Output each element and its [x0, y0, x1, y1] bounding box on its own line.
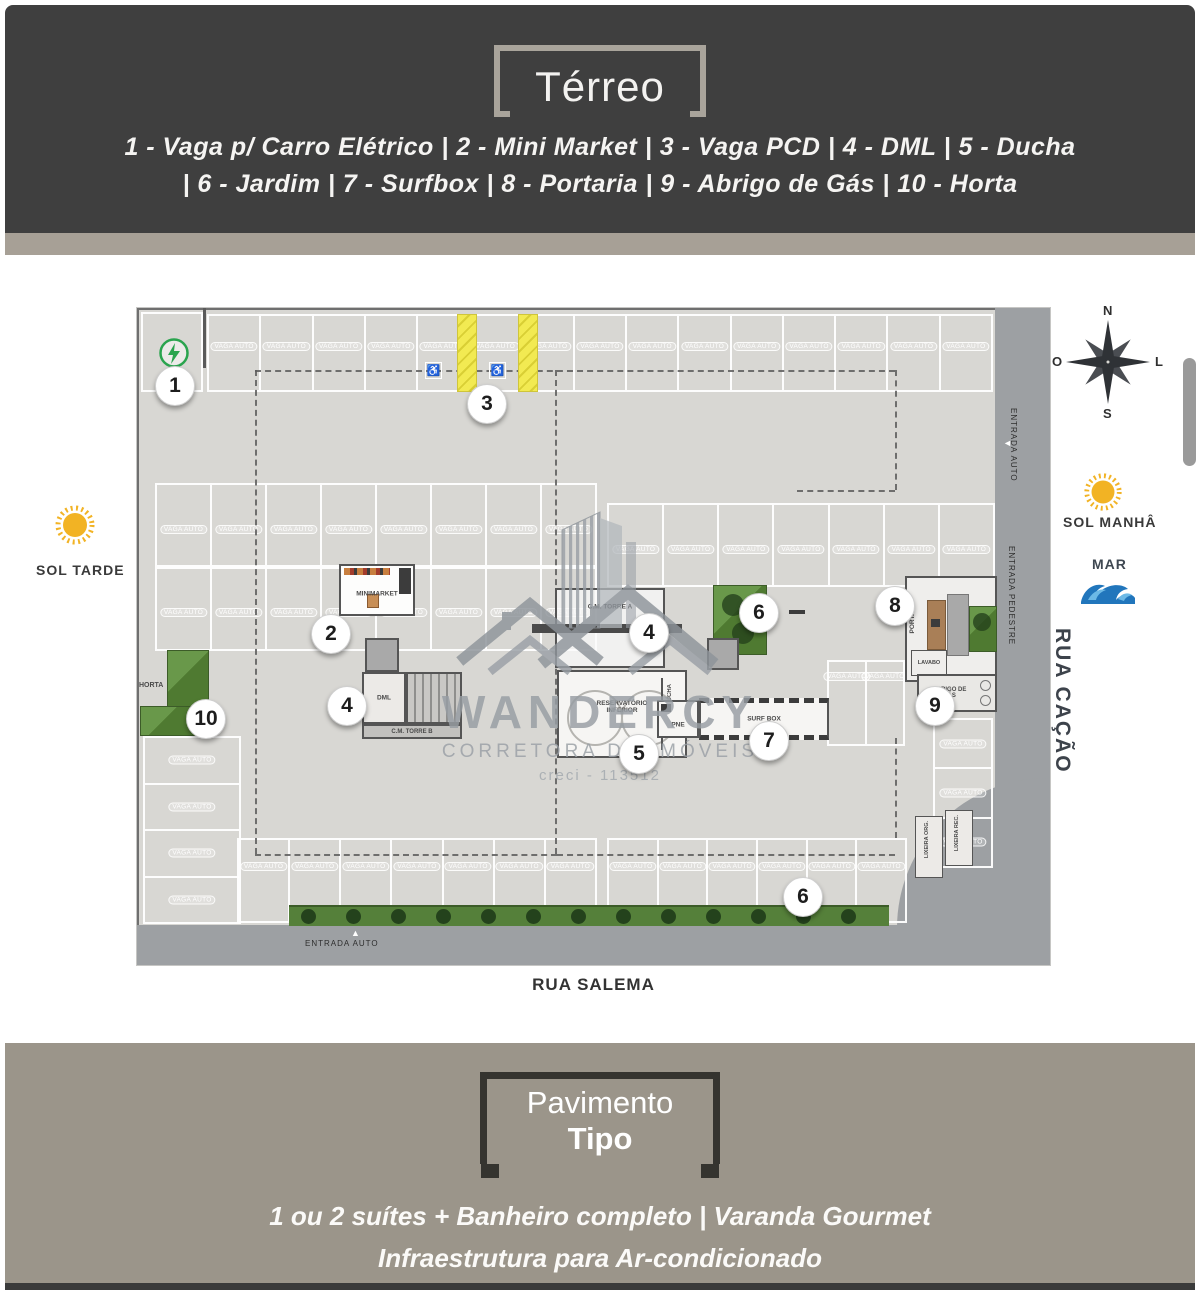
scrollbar-thumb[interactable] [1183, 358, 1196, 466]
sea-label: MAR [1092, 556, 1127, 572]
compass-w-label: O [1052, 354, 1062, 369]
street-name-rua-salema: RUA SALEMA [137, 975, 1050, 995]
street-name-rua-cacao: RUA CAÇÃO [1050, 628, 1074, 774]
compass-icon [1066, 320, 1150, 404]
legend-line-1: 1 - Vaga p/ Carro Elétrico | 2 - Mini Ma… [5, 133, 1195, 162]
floor-plan: VAGA AUTOVAGA AUTOVAGA AUTOVAGA AUTOVAGA… [137, 308, 1050, 965]
compass-s-label: S [1103, 406, 1112, 421]
plan-marker-9: 9 [915, 686, 955, 726]
plan-marker-7: 7 [749, 721, 789, 761]
footer-pavimento-tipo: Pavimento Tipo 1 ou 2 suítes + Banheiro … [5, 1043, 1195, 1283]
plan-marker-6: 6 [783, 877, 823, 917]
footer-title-line1: Pavimento [5, 1085, 1195, 1121]
sun-morning-label: SOL MANHÂ [1063, 514, 1157, 530]
floorplan-page: Térreo 1 - Vaga p/ Carro Elétrico | 2 - … [0, 0, 1200, 1290]
wave-icon [1078, 574, 1138, 606]
plan-marker-10: 10 [186, 699, 226, 739]
sun-icon [1081, 470, 1125, 514]
plan-marker-5: 5 [619, 734, 659, 774]
plan-marker-8: 8 [875, 586, 915, 626]
plan-marker-1: 1 [155, 366, 195, 406]
plan-marker-4: 4 [629, 613, 669, 653]
plan-marker-6: 6 [739, 593, 779, 633]
compass-e-label: L [1155, 354, 1163, 369]
header-terreo: Térreo 1 - Vaga p/ Carro Elétrico | 2 - … [5, 5, 1195, 233]
plan-marker-3: 3 [467, 384, 507, 424]
compass-n-label: N [1103, 303, 1112, 318]
plan-marker-4: 4 [327, 686, 367, 726]
footer-title-line2: Tipo [5, 1121, 1195, 1157]
footer-text-line2: Infraestrutura para Ar-condicionado [5, 1243, 1195, 1274]
divider-band [5, 233, 1195, 255]
legend-line-2: | 6 - Jardim | 7 - Surfbox | 8 - Portari… [5, 170, 1195, 199]
sun-icon [52, 502, 98, 548]
page-title: Térreo [5, 63, 1195, 111]
bottom-strip [5, 1283, 1195, 1290]
sun-afternoon-label: SOL TARDE [36, 562, 125, 578]
footer-text-line1: 1 ou 2 suítes + Banheiro completo | Vara… [5, 1201, 1195, 1232]
plan-marker-2: 2 [311, 614, 351, 654]
